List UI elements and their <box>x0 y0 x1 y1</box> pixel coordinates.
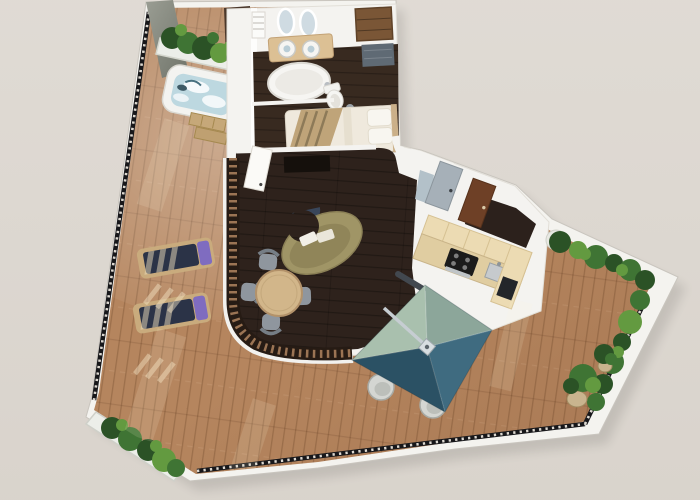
floor-plan-render <box>0 0 700 500</box>
pillow <box>367 108 392 126</box>
shower-mat <box>361 43 394 67</box>
wardrobe <box>355 7 393 41</box>
dining-table <box>256 270 302 316</box>
pillow <box>368 127 393 144</box>
vanity-mirror <box>299 10 317 37</box>
tv-niche <box>284 155 331 173</box>
floor-plan-canvas <box>0 0 700 500</box>
towel-ladder <box>252 12 265 38</box>
vanity-mirror <box>277 8 295 35</box>
